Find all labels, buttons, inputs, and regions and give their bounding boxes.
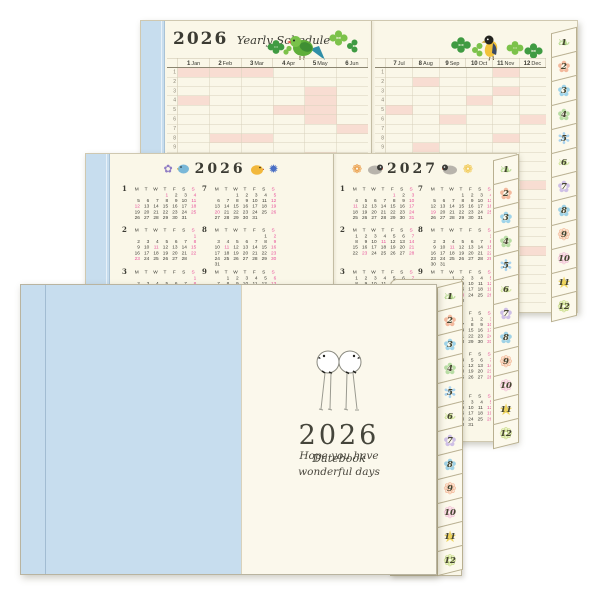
- schedule-cell: [337, 77, 368, 86]
- tab-number: 10: [558, 254, 570, 264]
- schedule-cell: [520, 124, 546, 133]
- schedule-cell: [520, 153, 546, 162]
- tab-number: 4: [503, 237, 509, 247]
- schedule-cell: [242, 143, 274, 152]
- tab-number: 2: [561, 62, 567, 72]
- schedule-cell: [305, 77, 337, 86]
- schedule-cell: [210, 115, 242, 124]
- schedule-cell: [520, 115, 546, 124]
- yearly-year: 2026: [173, 29, 228, 49]
- schedule-cell: [337, 68, 368, 77]
- schedule-cell: [520, 209, 546, 218]
- tab-number: 5: [561, 134, 567, 144]
- month-column-header: 1Jan: [178, 59, 210, 68]
- schedule-cell: [178, 96, 210, 105]
- schedule-cell: [242, 115, 274, 124]
- schedule-row: 9: [375, 143, 546, 152]
- schedule-row: 4: [375, 96, 546, 105]
- schedule-cell: [273, 124, 305, 133]
- schedule-row: 5: [167, 106, 368, 115]
- schedule-cell: [466, 134, 493, 143]
- mini-month-calendar: 8MTWTFSS12345678910111213141516171819202…: [202, 227, 282, 267]
- schedule-cell: [413, 106, 440, 115]
- month-column-header: 9Sep: [439, 59, 466, 68]
- schedule-cell: [520, 106, 546, 115]
- datebook-product-image: 2026 Yearly Schedule: [0, 0, 600, 600]
- mini-month-calendar: 2MTWTFSS12345678910111213141516171819202…: [340, 227, 420, 256]
- tab-number: 1: [561, 38, 567, 48]
- schedule-cell: [273, 87, 305, 96]
- schedule-cell: [273, 106, 305, 115]
- schedule-row: 8: [375, 134, 546, 143]
- schedule-cell: [178, 68, 210, 77]
- schedule-cell: [386, 96, 413, 105]
- schedule-cell: [413, 68, 440, 77]
- schedule-cell: [520, 303, 546, 312]
- schedule-row: 5: [375, 106, 546, 115]
- schedule-cell: [440, 77, 467, 86]
- schedule-cell: [520, 190, 546, 199]
- month-column-header: 12Dec: [519, 59, 546, 68]
- tab-number: 11: [444, 532, 456, 542]
- year-2026: 2026: [195, 161, 246, 177]
- schedule-cell: [493, 134, 520, 143]
- schedule-cell: [493, 68, 520, 77]
- tab-number: 12: [500, 429, 512, 439]
- schedule-cell: [386, 115, 413, 124]
- tab-number: 3: [503, 213, 509, 223]
- schedule-cell: [520, 162, 546, 171]
- schedule-cell: [440, 124, 467, 133]
- schedule-cell: [440, 68, 467, 77]
- tab-number: 12: [444, 556, 456, 566]
- schedule-cell: [413, 77, 440, 86]
- cover-year: 2026: [242, 420, 436, 451]
- schedule-cell: [242, 124, 274, 133]
- schedule-cell: [520, 228, 546, 237]
- tab-number: 1: [503, 165, 509, 175]
- tab-number: 12: [558, 302, 570, 312]
- schedule-cell: [493, 143, 520, 152]
- index-tabs-calendar: ❧1✿2✿3✿4✻5❧6✿7✿8❁9❁10★11❁12: [493, 158, 519, 446]
- java-sparrow-icon: [367, 163, 383, 175]
- schedule-cell: [273, 68, 305, 77]
- tab-number: 11: [500, 405, 512, 415]
- schedule-cell: [440, 106, 467, 115]
- schedule-cell: [273, 134, 305, 143]
- tab-number: 6: [561, 158, 567, 168]
- schedule-cell: [273, 115, 305, 124]
- mini-month-calendar: 2MTWTFSS12345678910111213141516171819202…: [122, 227, 202, 261]
- tab-number: 8: [503, 333, 509, 343]
- tab-number: 10: [500, 381, 512, 391]
- schedule-row: 3: [375, 87, 546, 96]
- tab-number: 6: [503, 285, 509, 295]
- schedule-cell: [210, 143, 242, 152]
- schedule-cell: [242, 68, 274, 77]
- mini-month-calendar: 1MTWTFSS12345678910111213141516171819202…: [340, 186, 420, 220]
- schedule-row: 9: [167, 143, 368, 152]
- schedule-row: 6: [375, 115, 546, 124]
- schedule-cell: [242, 77, 274, 86]
- tab-number: 2: [447, 316, 453, 326]
- schedule-cell: [520, 96, 546, 105]
- schedule-cell: [440, 96, 467, 105]
- schedule-cell: [178, 106, 210, 115]
- schedule-cell: [210, 68, 242, 77]
- schedule-cell: [337, 143, 368, 152]
- schedule-row: 7: [375, 124, 546, 133]
- schedule-cell: [413, 115, 440, 124]
- yellow-flower-icon: ❁: [463, 162, 473, 176]
- schedule-cell: [493, 124, 520, 133]
- blue-star-flower-icon: ✹: [268, 162, 278, 176]
- schedule-cell: [413, 96, 440, 105]
- schedule-row: 2: [375, 77, 546, 86]
- schedule-row: 4: [167, 96, 368, 105]
- month-column-header: 4Apr: [273, 59, 305, 68]
- schedule-cell: [337, 106, 368, 115]
- tab-number: 11: [558, 278, 570, 288]
- schedule-cell: [493, 77, 520, 86]
- schedule-cell: [273, 77, 305, 86]
- java-sparrow-icon: [442, 163, 458, 175]
- schedule-cell: [386, 143, 413, 152]
- schedule-row: 8: [167, 134, 368, 143]
- schedule-cell: [305, 124, 337, 133]
- schedule-cell: [386, 77, 413, 86]
- schedule-cell: [413, 87, 440, 96]
- schedule-cell: [386, 134, 413, 143]
- schedule-cell: [337, 87, 368, 96]
- schedule-cell: [520, 134, 546, 143]
- tab-number: 7: [561, 182, 567, 192]
- month-column-header: 10Oct: [466, 59, 493, 68]
- tab-number: 4: [447, 364, 453, 374]
- tab-number: 7: [503, 309, 509, 319]
- schedule-cell: [520, 294, 546, 303]
- schedule-cell: [178, 124, 210, 133]
- month-column-header: 3Mar: [241, 59, 273, 68]
- schedule-cell: [520, 171, 546, 180]
- yellow-bird-icon: [250, 163, 264, 175]
- tab-number: 9: [561, 230, 567, 240]
- month-column-header: 2Feb: [210, 59, 242, 68]
- schedule-cell: [273, 143, 305, 152]
- schedule-cell: [493, 106, 520, 115]
- schedule-cell: [413, 134, 440, 143]
- schedule-cell: [466, 124, 493, 133]
- schedule-cell: [178, 115, 210, 124]
- schedule-cell: [337, 134, 368, 143]
- tab-number: 3: [561, 86, 567, 96]
- cover-fold-line: [45, 285, 46, 574]
- schedule-cell: [520, 143, 546, 152]
- schedule-cell: [210, 96, 242, 105]
- schedule-cell: [440, 87, 467, 96]
- schedule-cell: [413, 143, 440, 152]
- schedule-cell: [520, 275, 546, 284]
- schedule-cell: [466, 87, 493, 96]
- calendar-title-2026: ✿ 2026 ✹: [109, 160, 333, 178]
- tab-number: 2: [503, 189, 509, 199]
- cover-front-panel: 2026 Datebook Hope you have wonderful da…: [241, 285, 436, 574]
- schedule-cell: [493, 87, 520, 96]
- schedule-cell: [210, 106, 242, 115]
- yellow-bird-icon: [481, 33, 501, 61]
- tab-number: 5: [447, 388, 453, 398]
- schedule-cell: [466, 106, 493, 115]
- schedule-row: 3: [167, 87, 368, 96]
- schedule-cell: [520, 265, 546, 274]
- schedule-cell: [520, 87, 546, 96]
- mini-month-calendar: 7MTWTFSS12345678910111213141516171819202…: [202, 186, 282, 220]
- schedule-cell: [466, 77, 493, 86]
- tab-number: 3: [447, 340, 453, 350]
- mini-month-calendar: 1MTWTFSS12345678910111213141516171819202…: [122, 186, 202, 220]
- schedule-cell: [493, 115, 520, 124]
- tab-number: 9: [503, 357, 509, 367]
- schedule-cell: [242, 87, 274, 96]
- schedule-cell: [520, 256, 546, 265]
- schedule-row: 1: [375, 68, 546, 77]
- month-column-header: 8Aug: [413, 59, 440, 68]
- schedule-row: 6: [167, 115, 368, 124]
- schedule-cell: [210, 134, 242, 143]
- schedule-cell: [386, 106, 413, 115]
- schedule-cell: [178, 134, 210, 143]
- schedule-cell: [210, 87, 242, 96]
- schedule-cell: [337, 96, 368, 105]
- schedule-cell: [242, 106, 274, 115]
- schedule-cell: [466, 115, 493, 124]
- cover-back-panel: [21, 285, 241, 574]
- two-white-birds-icon: [302, 347, 376, 413]
- month-column-header: 11Nov: [493, 59, 520, 68]
- schedule-cell: [178, 77, 210, 86]
- tab-number: 8: [447, 460, 453, 470]
- schedule-cell: [305, 96, 337, 105]
- schedule-cell: [273, 96, 305, 105]
- schedule-cell: [305, 134, 337, 143]
- schedule-cell: [305, 143, 337, 152]
- schedule-cell: [242, 96, 274, 105]
- schedule-cell: [466, 68, 493, 77]
- schedule-cell: [413, 124, 440, 133]
- schedule-cell: [210, 124, 242, 133]
- tab-number: 8: [561, 206, 567, 216]
- schedule-row: 1: [167, 68, 368, 77]
- month-column-header: 5May: [305, 59, 337, 68]
- orange-flower-icon: ❁: [352, 162, 362, 176]
- tab-number: 1: [447, 292, 453, 302]
- blue-bird-icon: [177, 163, 190, 174]
- schedule-cell: [520, 68, 546, 77]
- schedule-cell: [520, 237, 546, 246]
- mini-month-calendar: 7MTWTFSS12345678910111213141516171819202…: [418, 186, 491, 220]
- schedule-cell: [466, 96, 493, 105]
- schedule-cell: [242, 134, 274, 143]
- index-tab-12: ❁12: [493, 418, 519, 449]
- cover-tagline: Hope you have wonderful days: [242, 448, 436, 481]
- schedule-cell: [520, 218, 546, 227]
- index-tabs-inner: ❧1✿2✿3✿4✻5❧6✿7✿8❁9❁10★11❁12: [437, 285, 463, 573]
- tab-number: 5: [503, 261, 509, 271]
- schedule-row: 7: [167, 124, 368, 133]
- schedule-cell: [520, 77, 546, 86]
- tab-number: 10: [444, 508, 456, 518]
- schedule-cell: [210, 77, 242, 86]
- schedule-cell: [440, 115, 467, 124]
- index-tab-12: ❁12: [551, 291, 577, 322]
- schedule-cell: [520, 247, 546, 256]
- schedule-cell: [337, 115, 368, 124]
- schedule-cell: [520, 200, 546, 209]
- tab-number: 4: [561, 110, 567, 120]
- schedule-cell: [305, 87, 337, 96]
- schedule-cell: [386, 68, 413, 77]
- schedule-cell: [440, 134, 467, 143]
- mini-month-calendar: 8MTWTFSS12345678910111213141516171819202…: [418, 227, 491, 267]
- schedule-cell: [178, 143, 210, 152]
- schedule-cell: [493, 96, 520, 105]
- schedule-cell: [520, 181, 546, 190]
- month-column-header: 6Jun: [336, 59, 368, 68]
- schedule-cell: [337, 124, 368, 133]
- schedule-cell: [440, 143, 467, 152]
- index-tabs-yearly: ❧1✿2✿3✿4✻5❧6✿7✿8❁9❁10★11❁12: [551, 31, 577, 319]
- tab-number: 6: [447, 412, 453, 422]
- tab-number: 9: [447, 484, 453, 494]
- index-tab-12: ❁12: [437, 545, 463, 576]
- front-cover: 2026 Datebook Hope you have wonderful da…: [20, 284, 437, 575]
- year-2027: 2027: [387, 161, 438, 177]
- purple-flower-icon: ✿: [163, 163, 172, 175]
- calendar-title-2027: ❁ 2027 ❁: [334, 160, 491, 178]
- month-column-header: 7Jul: [386, 59, 413, 68]
- schedule-cell: [305, 68, 337, 77]
- schedule-cell: [178, 87, 210, 96]
- clover-flowers-icon: [326, 29, 360, 55]
- schedule-cell: [386, 87, 413, 96]
- schedule-cell: [386, 124, 413, 133]
- schedule-cell: [305, 115, 337, 124]
- schedule-row: 2: [167, 77, 368, 86]
- schedule-cell: [305, 106, 337, 115]
- tab-number: 7: [447, 436, 453, 446]
- schedule-cell: [520, 284, 546, 293]
- schedule-cell: [466, 143, 493, 152]
